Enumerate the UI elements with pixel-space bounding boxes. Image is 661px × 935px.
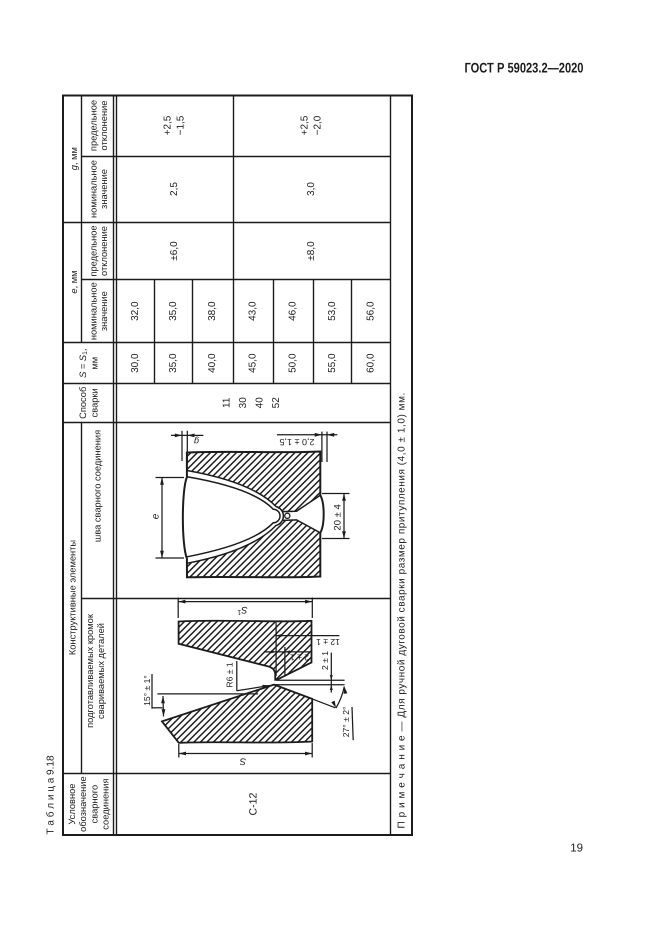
svg-text:шва сварного соединения: шва сварного соединения bbox=[93, 430, 103, 542]
svg-text:2,0 ± 1,5: 2,0 ± 1,5 bbox=[280, 437, 315, 447]
svg-text:сварки: сварки bbox=[90, 388, 100, 417]
svg-text:2,5: 2,5 bbox=[169, 182, 180, 196]
svg-text:19: 19 bbox=[570, 843, 583, 855]
svg-text:35,0: 35,0 bbox=[168, 301, 179, 321]
svg-text:50,0: 50,0 bbox=[288, 353, 299, 373]
svg-text:12 ± 1: 12 ± 1 bbox=[316, 637, 340, 647]
svg-text:Конструктивные элементы: Конструктивные элементы bbox=[68, 540, 78, 656]
svg-text:S: S bbox=[239, 755, 246, 766]
svg-text:g: g bbox=[194, 437, 199, 447]
svg-text:Т а б л и ц а 9.18: Т а б л и ц а 9.18 bbox=[45, 755, 56, 834]
svg-text:предельное: предельное bbox=[89, 100, 99, 151]
svg-text:32,0: 32,0 bbox=[130, 301, 141, 321]
svg-text:С-12: С-12 bbox=[247, 793, 259, 816]
svg-text:предельное: предельное bbox=[89, 225, 99, 276]
svg-text:g, мм: g, мм bbox=[69, 147, 79, 170]
svg-text:П р и м е ч а н и е — Для руч: П р и м е ч а н и е — Для ручной дуговой… bbox=[396, 392, 407, 828]
svg-text:45,0: 45,0 bbox=[248, 353, 259, 373]
svg-text:свариваемых деталей: свариваемых деталей bbox=[96, 623, 106, 719]
svg-text:±6,0: ±6,0 bbox=[169, 241, 180, 261]
svg-text:46,0: 46,0 bbox=[288, 301, 299, 321]
svg-text:мм: мм bbox=[90, 357, 100, 370]
svg-text:11: 11 bbox=[222, 397, 233, 408]
svg-text:−2,0: −2,0 bbox=[313, 115, 324, 135]
svg-text:−1,5: −1,5 bbox=[176, 115, 187, 135]
svg-text:Способ: Способ bbox=[78, 387, 88, 419]
svg-text:40,0: 40,0 bbox=[207, 353, 218, 373]
svg-text:3,0: 3,0 bbox=[306, 182, 317, 196]
svg-text:55,0: 55,0 bbox=[327, 353, 338, 373]
svg-text:27° ± 2°: 27° ± 2° bbox=[341, 707, 351, 738]
svg-text:соединения: соединения bbox=[101, 779, 111, 830]
svg-text:значение: значение bbox=[99, 169, 109, 209]
svg-text:52: 52 bbox=[271, 397, 282, 409]
svg-text:+2,5: +2,5 bbox=[163, 115, 174, 135]
svg-text:сварного: сварного bbox=[89, 785, 99, 824]
svg-text:38,0: 38,0 bbox=[207, 301, 218, 321]
svg-text:20 ± 4: 20 ± 4 bbox=[332, 504, 343, 530]
svg-text:e, мм: e, мм bbox=[69, 270, 79, 293]
svg-text:номинальное: номинальное bbox=[89, 282, 99, 340]
svg-text:отклонение: отклонение bbox=[99, 101, 109, 151]
svg-text:+2,5: +2,5 bbox=[300, 115, 311, 135]
svg-text:2 ± 1: 2 ± 1 bbox=[290, 653, 309, 663]
svg-text:e: e bbox=[151, 513, 162, 519]
svg-text:60,0: 60,0 bbox=[366, 353, 377, 373]
svg-text:40: 40 bbox=[255, 397, 266, 409]
svg-text:2 ± 1: 2 ± 1 bbox=[320, 651, 330, 670]
svg-text:отклонение: отклонение bbox=[99, 226, 109, 276]
svg-text:43,0: 43,0 bbox=[248, 301, 259, 321]
svg-text:53,0: 53,0 bbox=[327, 301, 338, 321]
svg-text:обозначение: обозначение bbox=[78, 776, 88, 831]
svg-text:ГОСТ Р 59023.2—2020: ГОСТ Р 59023.2—2020 bbox=[465, 60, 584, 76]
svg-text:номинальное: номинальное bbox=[89, 160, 99, 218]
svg-text:30: 30 bbox=[238, 397, 249, 409]
svg-text:30,0: 30,0 bbox=[130, 353, 141, 373]
svg-text:подготавливаемых кромок: подготавливаемых кромок bbox=[85, 613, 95, 728]
svg-text:56,0: 56,0 bbox=[366, 301, 377, 321]
svg-text:15° ± 1°: 15° ± 1° bbox=[142, 675, 152, 706]
svg-text:значение: значение bbox=[99, 291, 109, 331]
svg-text:35,0: 35,0 bbox=[168, 353, 179, 373]
svg-text:Условное: Условное bbox=[67, 784, 77, 825]
svg-text:R6 ± 1: R6 ± 1 bbox=[225, 662, 235, 687]
svg-text:±8,0: ±8,0 bbox=[306, 241, 317, 261]
